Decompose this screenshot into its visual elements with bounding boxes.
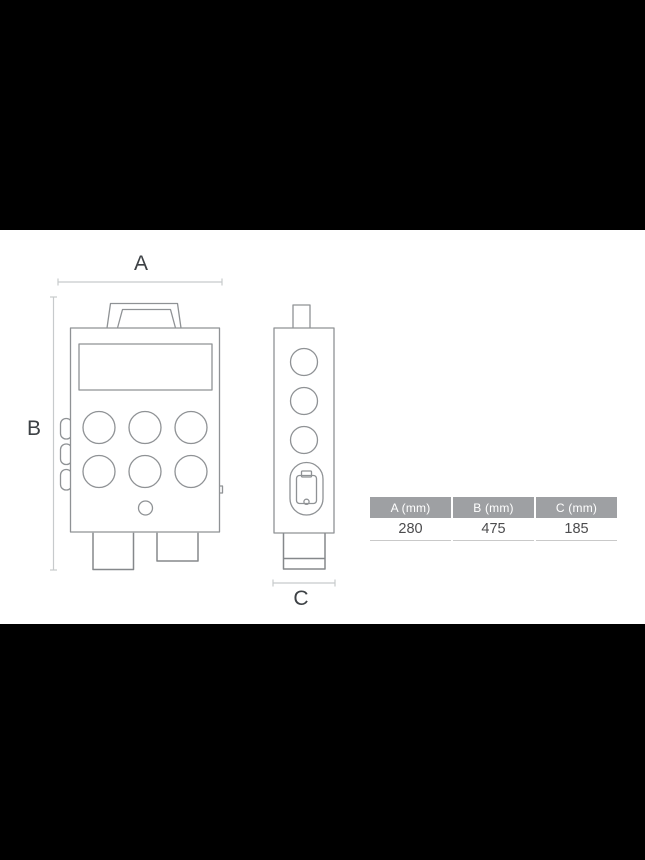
- dimension-b: B: [27, 297, 57, 570]
- letterbox-bottom: [0, 624, 645, 860]
- side-foot: [284, 533, 326, 569]
- dimension-c: C: [273, 580, 335, 611]
- table-header-cell: A (mm): [370, 497, 451, 518]
- dimension-drawing: A B C: [0, 230, 645, 624]
- table-header-cell: B (mm): [453, 497, 534, 518]
- side-view: [274, 305, 334, 569]
- side-handle-tab: [293, 305, 310, 328]
- dimensions-table: A (mm) 280 B (mm) 475 C (mm) 185: [370, 497, 617, 541]
- table-value-cell: 185: [536, 518, 617, 541]
- dim-b-label: B: [27, 417, 41, 440]
- column-c: C (mm) 185: [536, 497, 617, 541]
- letterbox-top: [0, 0, 645, 230]
- front-foot-right: [157, 533, 198, 561]
- column-b: B (mm) 475: [453, 497, 534, 541]
- page: { "dims": { "a": { "label": "A" }, "b": …: [0, 0, 645, 860]
- table-value-cell: 280: [370, 518, 451, 541]
- dimension-a: A: [58, 252, 222, 286]
- table-value-cell: 475: [453, 518, 534, 541]
- column-a: A (mm) 280: [370, 497, 451, 541]
- table-header-cell: C (mm): [536, 497, 617, 518]
- handle-inner: [118, 310, 176, 329]
- dim-c-label: C: [293, 587, 308, 610]
- drawing-area: A B C A (mm) 280 B (mm) 475 C (mm) 185: [0, 230, 645, 624]
- dim-a-label: A: [134, 252, 148, 275]
- front-view: [61, 304, 223, 570]
- front-foot-left: [93, 533, 134, 570]
